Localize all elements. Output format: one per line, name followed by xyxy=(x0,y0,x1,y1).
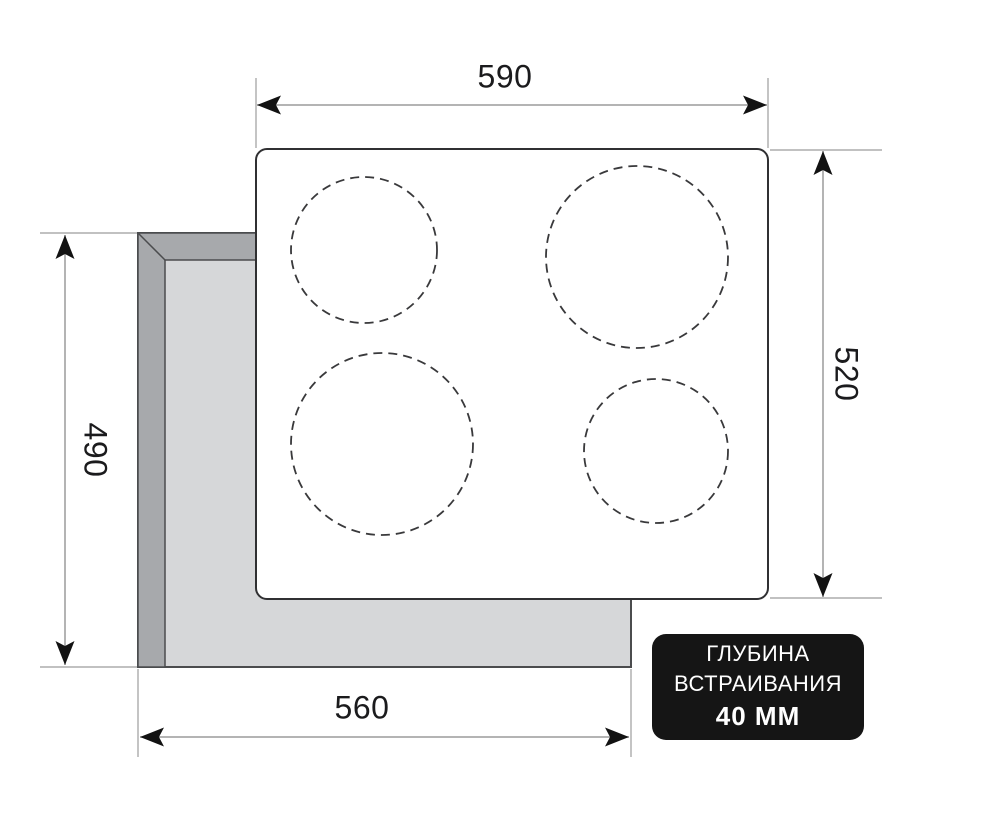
cooktop-surface xyxy=(256,149,768,599)
dim-label-top-width: 590 xyxy=(478,59,533,96)
badge-line-3: 40 ММ xyxy=(716,699,800,734)
depth-badge: ГЛУБИНА ВСТРАИВАНИЯ 40 ММ xyxy=(652,634,864,740)
badge-line-2: ВСТРАИВАНИЯ xyxy=(674,669,842,699)
dim-label-right-height: 520 xyxy=(828,347,865,402)
dim-label-bottom-width: 560 xyxy=(335,690,390,727)
badge-line-1: ГЛУБИНА xyxy=(706,639,809,669)
dim-label-left-height: 490 xyxy=(77,423,114,478)
diagram-canvas: 590 520 490 560 ГЛУБИНА ВСТРАИВАНИЯ 40 М… xyxy=(0,0,1000,820)
